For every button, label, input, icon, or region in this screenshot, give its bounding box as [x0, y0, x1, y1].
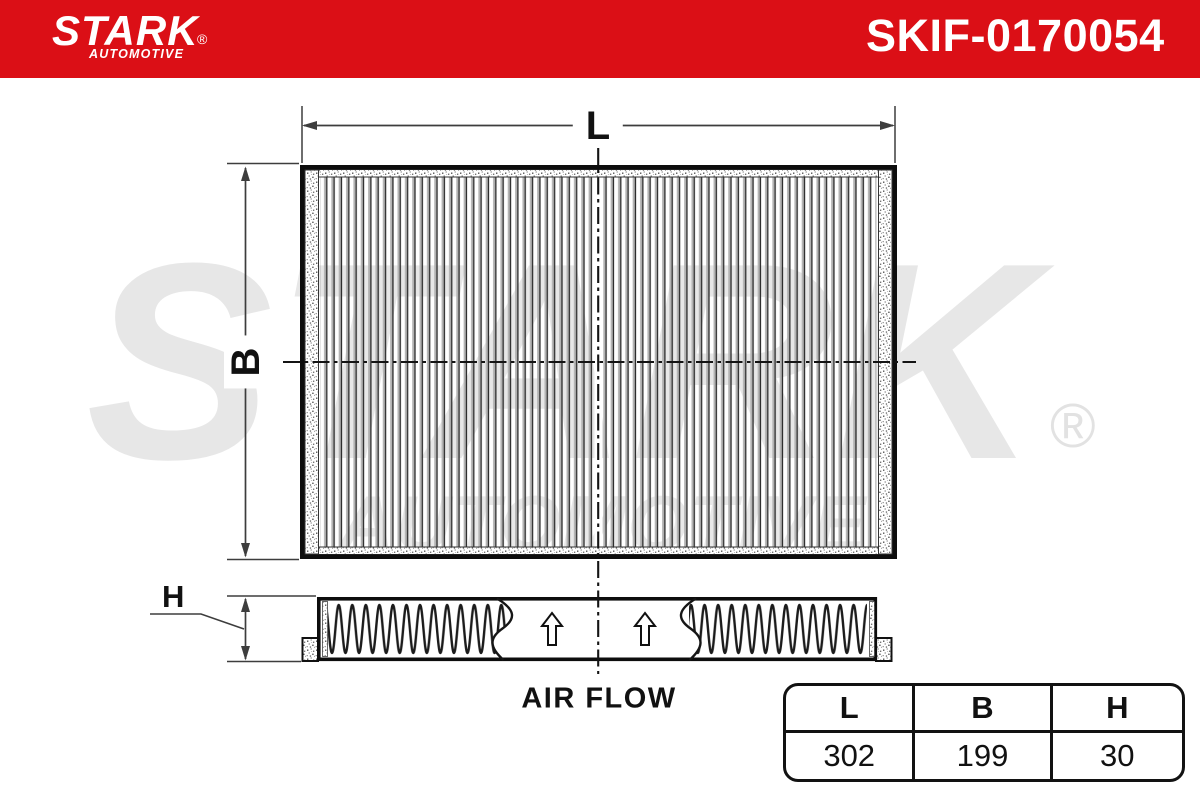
arrowhead-down-icon: [241, 543, 250, 558]
side-view: [303, 599, 892, 662]
arrowhead-right-icon: [880, 121, 895, 130]
registered-mark-icon: ®: [197, 32, 207, 46]
width-label: B: [224, 336, 268, 389]
table-value-h: 30: [1053, 733, 1182, 780]
air-flow-label: AIR FLOW: [521, 685, 676, 714]
arrowhead-up-icon: [241, 167, 250, 182]
table-value-b: 199: [915, 733, 1052, 780]
height-label: H: [162, 581, 184, 612]
table-value-l: 302: [786, 733, 915, 780]
side-edge-strip-left: [323, 602, 328, 657]
part-number: SKIF-0170054: [866, 13, 1165, 58]
table-header-h: H: [1053, 686, 1182, 733]
arrowhead-up-icon: [241, 598, 250, 613]
length-label: L: [573, 104, 623, 148]
table-header-l: L: [786, 686, 915, 733]
side-foot-right: [876, 638, 892, 661]
pleat-profile-right: [689, 600, 867, 658]
height-leader-line: [150, 614, 244, 629]
table-header-b: B: [915, 686, 1052, 733]
brand-logo-text: STARK: [52, 10, 199, 52]
side-edge-strip-right: [870, 602, 875, 657]
pleat-profile-left: [328, 600, 506, 658]
side-foot-left: [303, 638, 319, 661]
dimensions-table: L B H 302 199 30: [783, 683, 1185, 782]
arrowhead-left-icon: [302, 121, 317, 130]
brand-subtitle-text: AUTOMOTIVE: [89, 48, 184, 61]
product-technical-image: STARK ® AUTOMOTIVE: [0, 0, 1200, 800]
arrowhead-down-icon: [241, 646, 250, 661]
brand-header: STARK ® AUTOMOTIVE SKIF-0170054: [0, 0, 1200, 78]
